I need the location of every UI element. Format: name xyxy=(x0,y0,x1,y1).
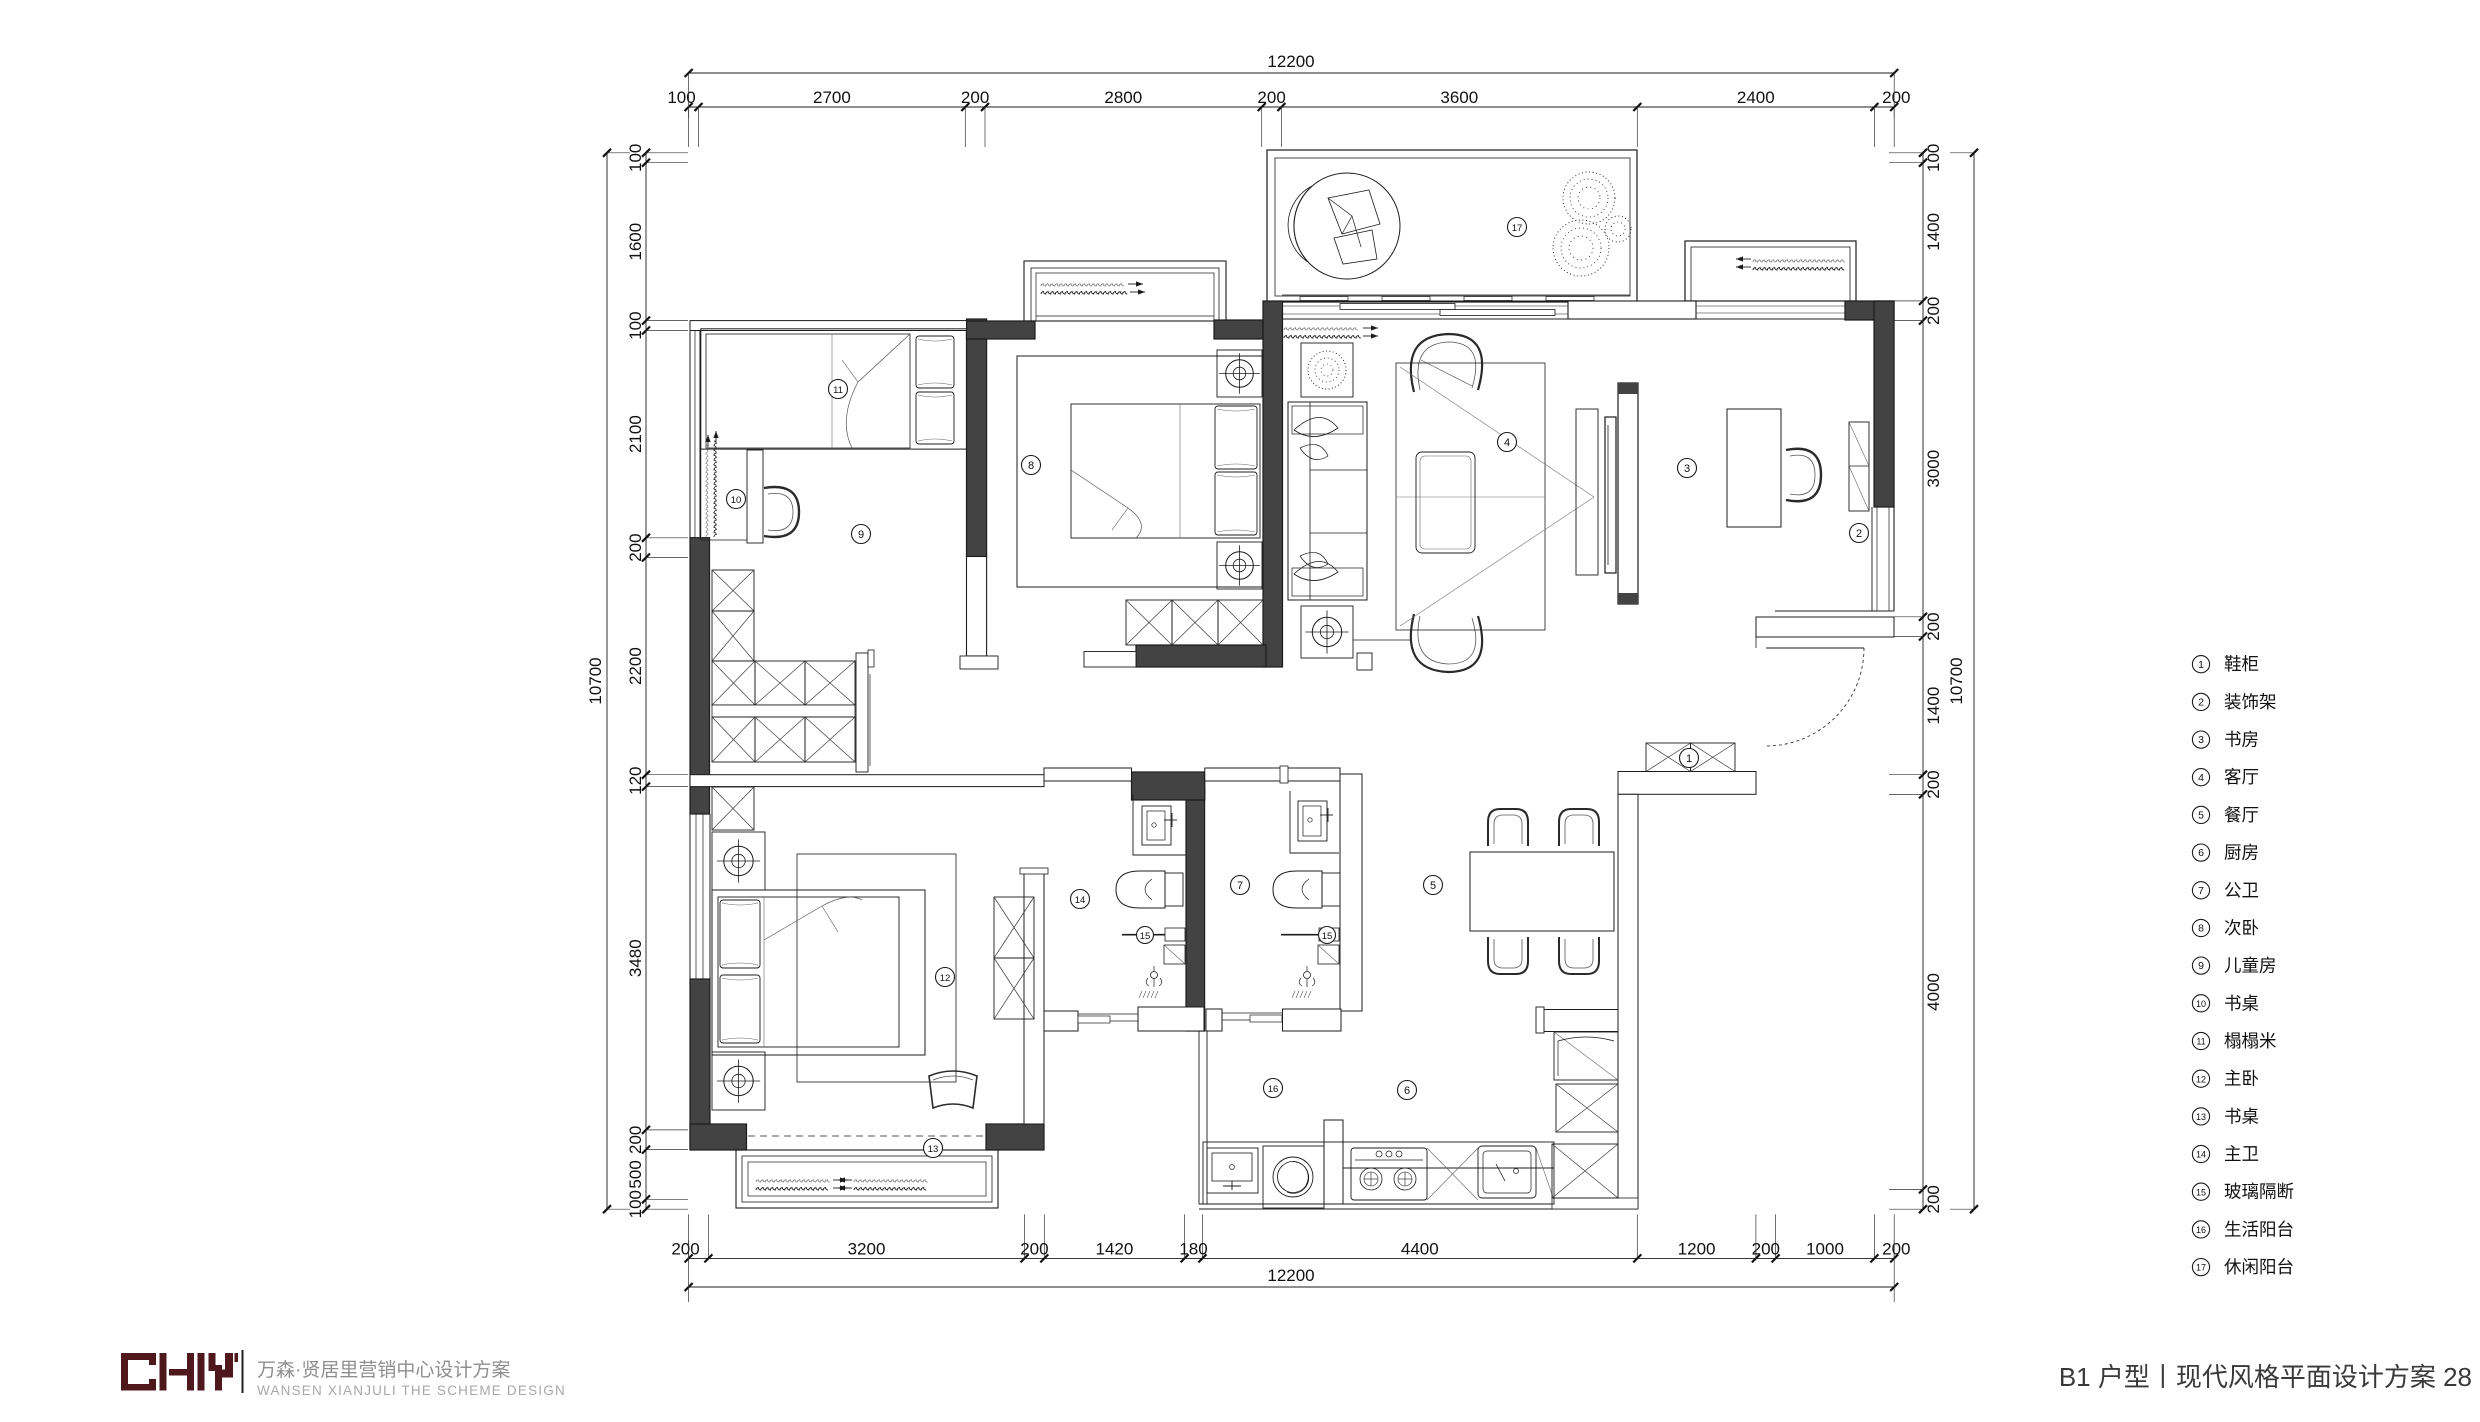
svg-text:儿童房: 儿童房 xyxy=(2224,956,2277,976)
svg-text:2: 2 xyxy=(2198,697,2204,709)
svg-text:3000: 3000 xyxy=(1924,450,1943,488)
svg-text:3: 3 xyxy=(2198,734,2204,746)
svg-text:2800: 2800 xyxy=(1104,88,1142,107)
svg-text:15: 15 xyxy=(1140,931,1151,942)
svg-text:9: 9 xyxy=(858,529,864,541)
svg-text:200: 200 xyxy=(1924,770,1943,798)
svg-text:玻璃隔断: 玻璃隔断 xyxy=(2224,1182,2294,1202)
svg-text:4: 4 xyxy=(1504,437,1510,449)
svg-text:书房: 书房 xyxy=(2224,730,2259,750)
svg-text:3600: 3600 xyxy=(1440,88,1478,107)
svg-text:120: 120 xyxy=(626,767,645,795)
svg-text:书桌: 书桌 xyxy=(2224,993,2259,1013)
svg-text:16: 16 xyxy=(2196,1225,2206,1235)
svg-text:厨房: 厨房 xyxy=(2224,843,2259,863)
svg-text:500: 500 xyxy=(626,1160,645,1188)
svg-text:6: 6 xyxy=(2198,847,2204,859)
svg-text:200: 200 xyxy=(626,533,645,561)
svg-text:7: 7 xyxy=(2198,885,2204,897)
svg-text:1600: 1600 xyxy=(626,223,645,261)
svg-text:14: 14 xyxy=(1075,895,1086,906)
svg-text:13: 13 xyxy=(928,1144,939,1155)
svg-text:100: 100 xyxy=(1924,144,1943,172)
svg-text:200: 200 xyxy=(1924,297,1943,325)
svg-text:200: 200 xyxy=(671,1239,699,1258)
svg-text:13: 13 xyxy=(2196,1112,2206,1122)
svg-text:200: 200 xyxy=(626,1126,645,1154)
svg-text:5: 5 xyxy=(1430,880,1436,892)
svg-text:17: 17 xyxy=(1512,223,1523,234)
svg-text:2400: 2400 xyxy=(1737,88,1775,107)
svg-text:180: 180 xyxy=(1179,1239,1207,1258)
svg-text:生活阳台: 生活阳台 xyxy=(2224,1219,2294,1239)
svg-text:榻榻米: 榻榻米 xyxy=(2224,1031,2277,1051)
svg-text:10: 10 xyxy=(731,495,742,506)
svg-text:200: 200 xyxy=(1882,88,1910,107)
svg-text:主卧: 主卧 xyxy=(2224,1069,2259,1089)
svg-text:10: 10 xyxy=(2196,999,2206,1009)
svg-text:3480: 3480 xyxy=(626,939,645,977)
svg-text:100: 100 xyxy=(626,144,645,172)
svg-text:16: 16 xyxy=(1268,1084,1279,1095)
svg-text:装饰架: 装饰架 xyxy=(2224,692,2277,712)
svg-text:万森·贤居里营销中心设计方案: 万森·贤居里营销中心设计方案 xyxy=(257,1359,510,1381)
svg-text:9: 9 xyxy=(2198,960,2204,972)
svg-text:12200: 12200 xyxy=(1267,1266,1314,1285)
svg-text:1: 1 xyxy=(2198,659,2204,671)
svg-text:200: 200 xyxy=(1924,1185,1943,1213)
svg-text:12: 12 xyxy=(940,973,951,984)
svg-text:2: 2 xyxy=(1856,528,1862,540)
svg-text:7: 7 xyxy=(1237,880,1243,892)
svg-text:100: 100 xyxy=(626,1190,645,1218)
svg-text:3200: 3200 xyxy=(848,1239,886,1258)
svg-text:11: 11 xyxy=(2196,1037,2205,1047)
svg-text:WANSEN XIANJULI THE SCHEME DES: WANSEN XIANJULI THE SCHEME DESIGN xyxy=(257,1383,566,1398)
svg-text:次卧: 次卧 xyxy=(2224,918,2259,938)
svg-text:公卫: 公卫 xyxy=(2224,880,2259,900)
svg-text:17: 17 xyxy=(2196,1263,2206,1273)
svg-text:3: 3 xyxy=(1684,463,1690,475)
svg-text:1420: 1420 xyxy=(1095,1239,1133,1258)
svg-text:休闲阳台: 休闲阳台 xyxy=(2224,1257,2294,1277)
svg-text:14: 14 xyxy=(2196,1150,2206,1160)
svg-text:主卫: 主卫 xyxy=(2224,1144,2259,1164)
svg-text:200: 200 xyxy=(961,88,989,107)
svg-text:客厅: 客厅 xyxy=(2224,767,2259,787)
svg-text:8: 8 xyxy=(1028,460,1034,472)
svg-text:100: 100 xyxy=(626,311,645,339)
svg-text:4400: 4400 xyxy=(1401,1239,1439,1258)
svg-text:200: 200 xyxy=(1752,1239,1780,1258)
svg-text:100: 100 xyxy=(667,88,695,107)
svg-text:B1 户型丨现代风格平面设计方案 28: B1 户型丨现代风格平面设计方案 28 xyxy=(2059,1362,2472,1392)
svg-text:1400: 1400 xyxy=(1924,687,1943,725)
svg-text:餐厅: 餐厅 xyxy=(2224,805,2259,825)
svg-text:8: 8 xyxy=(2198,923,2204,935)
svg-text:15: 15 xyxy=(2196,1187,2206,1197)
svg-text:12200: 12200 xyxy=(1267,52,1314,71)
svg-text:200: 200 xyxy=(1924,612,1943,640)
svg-text:200: 200 xyxy=(1882,1239,1910,1258)
svg-text:2200: 2200 xyxy=(626,647,645,685)
svg-text:10700: 10700 xyxy=(1947,657,1966,704)
svg-text:15: 15 xyxy=(1322,931,1333,942)
svg-text:4000: 4000 xyxy=(1924,973,1943,1011)
svg-text:1400: 1400 xyxy=(1924,213,1943,251)
svg-text:10700: 10700 xyxy=(586,657,605,704)
svg-text:200: 200 xyxy=(1020,1239,1048,1258)
svg-text:1000: 1000 xyxy=(1806,1239,1844,1258)
svg-text:6: 6 xyxy=(1404,1085,1410,1097)
svg-text:2100: 2100 xyxy=(626,415,645,453)
svg-text:1: 1 xyxy=(1686,753,1692,765)
svg-text:鞋柜: 鞋柜 xyxy=(2224,654,2259,674)
svg-text:2700: 2700 xyxy=(813,88,851,107)
svg-text:1200: 1200 xyxy=(1678,1239,1716,1258)
svg-text:11: 11 xyxy=(833,385,843,396)
svg-text:5: 5 xyxy=(2198,810,2204,822)
svg-text:12: 12 xyxy=(2196,1074,2206,1084)
svg-text:200: 200 xyxy=(1257,88,1285,107)
svg-text:4: 4 xyxy=(2198,772,2204,784)
svg-text:书桌: 书桌 xyxy=(2224,1106,2259,1126)
